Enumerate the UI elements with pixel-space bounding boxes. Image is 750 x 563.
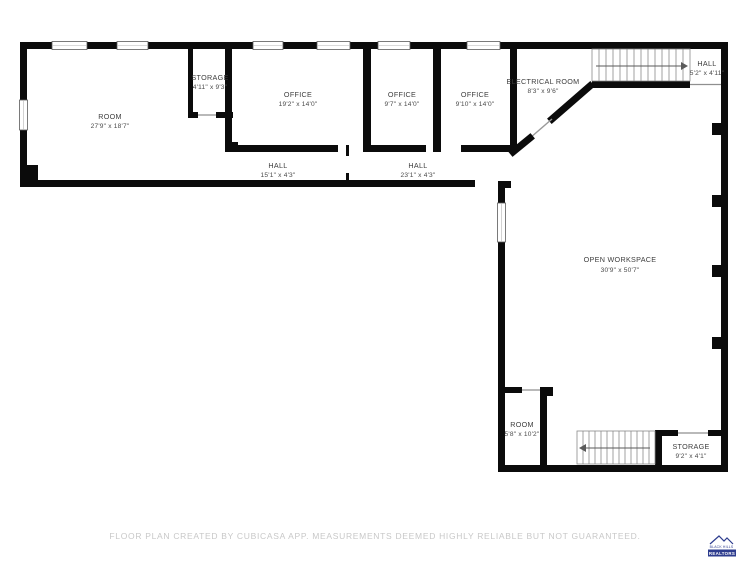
wall-office3-bottom bbox=[461, 145, 512, 152]
wall-right bbox=[721, 42, 728, 472]
office-1-name: OFFICE bbox=[284, 90, 312, 99]
wall-corner-block bbox=[20, 165, 38, 182]
office-2-name: OFFICE bbox=[388, 90, 416, 99]
hall-east-dims: 23'1" x 4'3" bbox=[401, 172, 436, 179]
room-label-hall-east: HALL 23'1" x 4'3" bbox=[401, 161, 436, 179]
open-workspace-dims: 30'9" x 50'7" bbox=[601, 267, 640, 274]
floor-plan-drawing: ROOM 27'9" x 18'7" STORAGE 4'11" x 9'3" … bbox=[0, 0, 750, 563]
hall-west-dims: 15'1" x 4'3" bbox=[261, 172, 296, 179]
room-bottom-dims: 5'8" x 10'2" bbox=[505, 431, 540, 438]
office-2-dims: 9'7" x 14'0" bbox=[385, 101, 420, 108]
logo-name-text: BLACK HILLS bbox=[710, 545, 734, 549]
wall-room-east bbox=[225, 49, 232, 152]
wall-tab-3 bbox=[712, 265, 721, 277]
room-label-room-main: ROOM 27'9" x 18'7" bbox=[91, 112, 130, 130]
office-3-name: OFFICE bbox=[461, 90, 489, 99]
open-workspace-name: OPEN WORKSPACE bbox=[584, 255, 657, 264]
room-label-hall-west: HALL 15'1" x 4'3" bbox=[261, 161, 296, 179]
wall-tab-2 bbox=[712, 195, 721, 207]
room-label-electrical-room: ELECTRICAL ROOM 8'3" x 9'6" bbox=[507, 77, 580, 95]
wall-electrical-left bbox=[510, 49, 517, 152]
wall-room-bottom-block bbox=[540, 387, 553, 396]
wall-office2-bottom bbox=[371, 145, 426, 152]
room-label-room-bottom: ROOM 5'8" x 10'2" bbox=[505, 420, 540, 438]
storage-top-name: STORAGE bbox=[191, 73, 228, 82]
storage-bottom-name: STORAGE bbox=[672, 442, 709, 451]
windows bbox=[20, 42, 506, 243]
wall-tab-1 bbox=[712, 123, 721, 135]
wall-office1-bottom bbox=[232, 145, 338, 152]
staircase-lower bbox=[577, 431, 655, 464]
window-center-lines bbox=[24, 46, 502, 243]
hall-top-right-dims: 5'2" x 4'11" bbox=[690, 70, 725, 77]
realtor-logo: BLACK HILLS REALTORS bbox=[706, 532, 746, 559]
mountain-icon bbox=[710, 536, 733, 544]
disclaimer-text: FLOOR PLAN CREATED BY CUBICASA APP. MEAS… bbox=[0, 531, 750, 541]
wall-bottom bbox=[498, 465, 728, 472]
room-labels: ROOM 27'9" x 18'7" STORAGE 4'11" x 9'3" … bbox=[91, 59, 725, 460]
hall-divider-tick-bottom bbox=[346, 173, 349, 181]
wall-workspace-left-cap bbox=[498, 181, 511, 188]
wall-office-divider-2 bbox=[433, 49, 441, 152]
hall-divider-tick-top bbox=[346, 145, 349, 156]
office-1-dims: 19'2" x 14'0" bbox=[279, 101, 318, 108]
floor-plan-page: ROOM 27'9" x 18'7" STORAGE 4'11" x 9'3" … bbox=[0, 0, 750, 563]
room-label-office-1: OFFICE 19'2" x 14'0" bbox=[279, 90, 318, 108]
staircase-upper bbox=[592, 49, 690, 81]
wall-storage-b-top-b bbox=[708, 430, 721, 436]
electrical-room-name: ELECTRICAL ROOM bbox=[507, 77, 580, 86]
storage-top-dims: 4'11" x 9'3" bbox=[193, 84, 228, 91]
electrical-room-dims: 8'3" x 9'6" bbox=[527, 88, 558, 95]
room-main-dims: 27'9" x 18'7" bbox=[91, 123, 130, 130]
wall-under-stairs bbox=[592, 81, 690, 88]
room-main-name: ROOM bbox=[98, 112, 122, 121]
wall-room-bottom-top bbox=[505, 387, 522, 393]
room-label-open-workspace: OPEN WORKSPACE 30'9" x 50'7" bbox=[584, 255, 657, 274]
storage-bottom-dims: 9'2" x 4'1" bbox=[675, 453, 706, 460]
room-bottom-name: ROOM bbox=[510, 420, 534, 429]
room-label-office-3: OFFICE 9'10" x 14'0" bbox=[456, 90, 495, 108]
wall-storage-bottom-a bbox=[188, 112, 198, 118]
wall-office-divider-1 bbox=[363, 49, 371, 152]
room-label-storage-top: STORAGE 4'11" x 9'3" bbox=[191, 73, 228, 91]
hall-east-name: HALL bbox=[408, 161, 427, 170]
logo-type-text: REALTORS bbox=[709, 551, 735, 556]
wall-storage-b-top-a bbox=[655, 430, 678, 436]
room-label-storage-bottom: STORAGE 9'2" x 4'1" bbox=[672, 442, 709, 460]
electrical-room-diagonal-wall bbox=[513, 86, 590, 152]
wall-tab-4 bbox=[712, 337, 721, 349]
wall-left-wing-bottom bbox=[20, 180, 475, 187]
hall-top-right-name: HALL bbox=[697, 59, 716, 68]
wall-room-bottom-right bbox=[540, 387, 547, 466]
room-label-office-2: OFFICE 9'7" x 14'0" bbox=[385, 90, 420, 108]
hall-west-name: HALL bbox=[268, 161, 287, 170]
office-3-dims: 9'10" x 14'0" bbox=[456, 101, 495, 108]
diagonal-door-leaf bbox=[530, 119, 552, 138]
room-label-hall-top-right: HALL 5'2" x 4'11" bbox=[690, 59, 725, 77]
